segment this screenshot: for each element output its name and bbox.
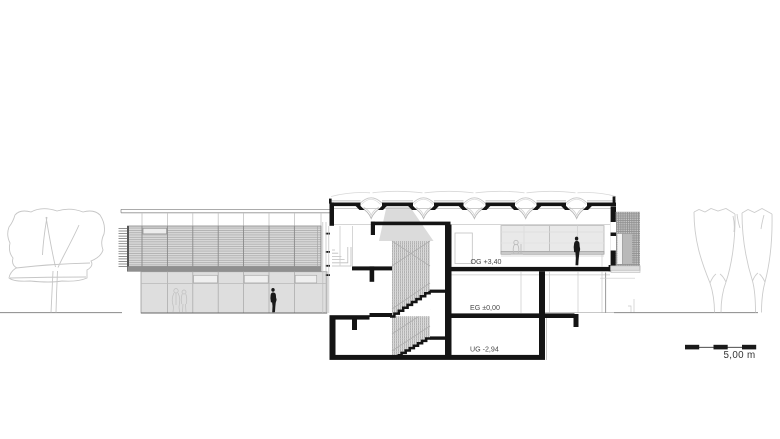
svg-text:UG -2,94: UG -2,94 [470, 346, 499, 354]
svg-text:OG +3,40: OG +3,40 [471, 258, 502, 266]
svg-text:EG ±0,00: EG ±0,00 [470, 304, 500, 312]
svg-text:5,00 m: 5,00 m [724, 350, 756, 361]
